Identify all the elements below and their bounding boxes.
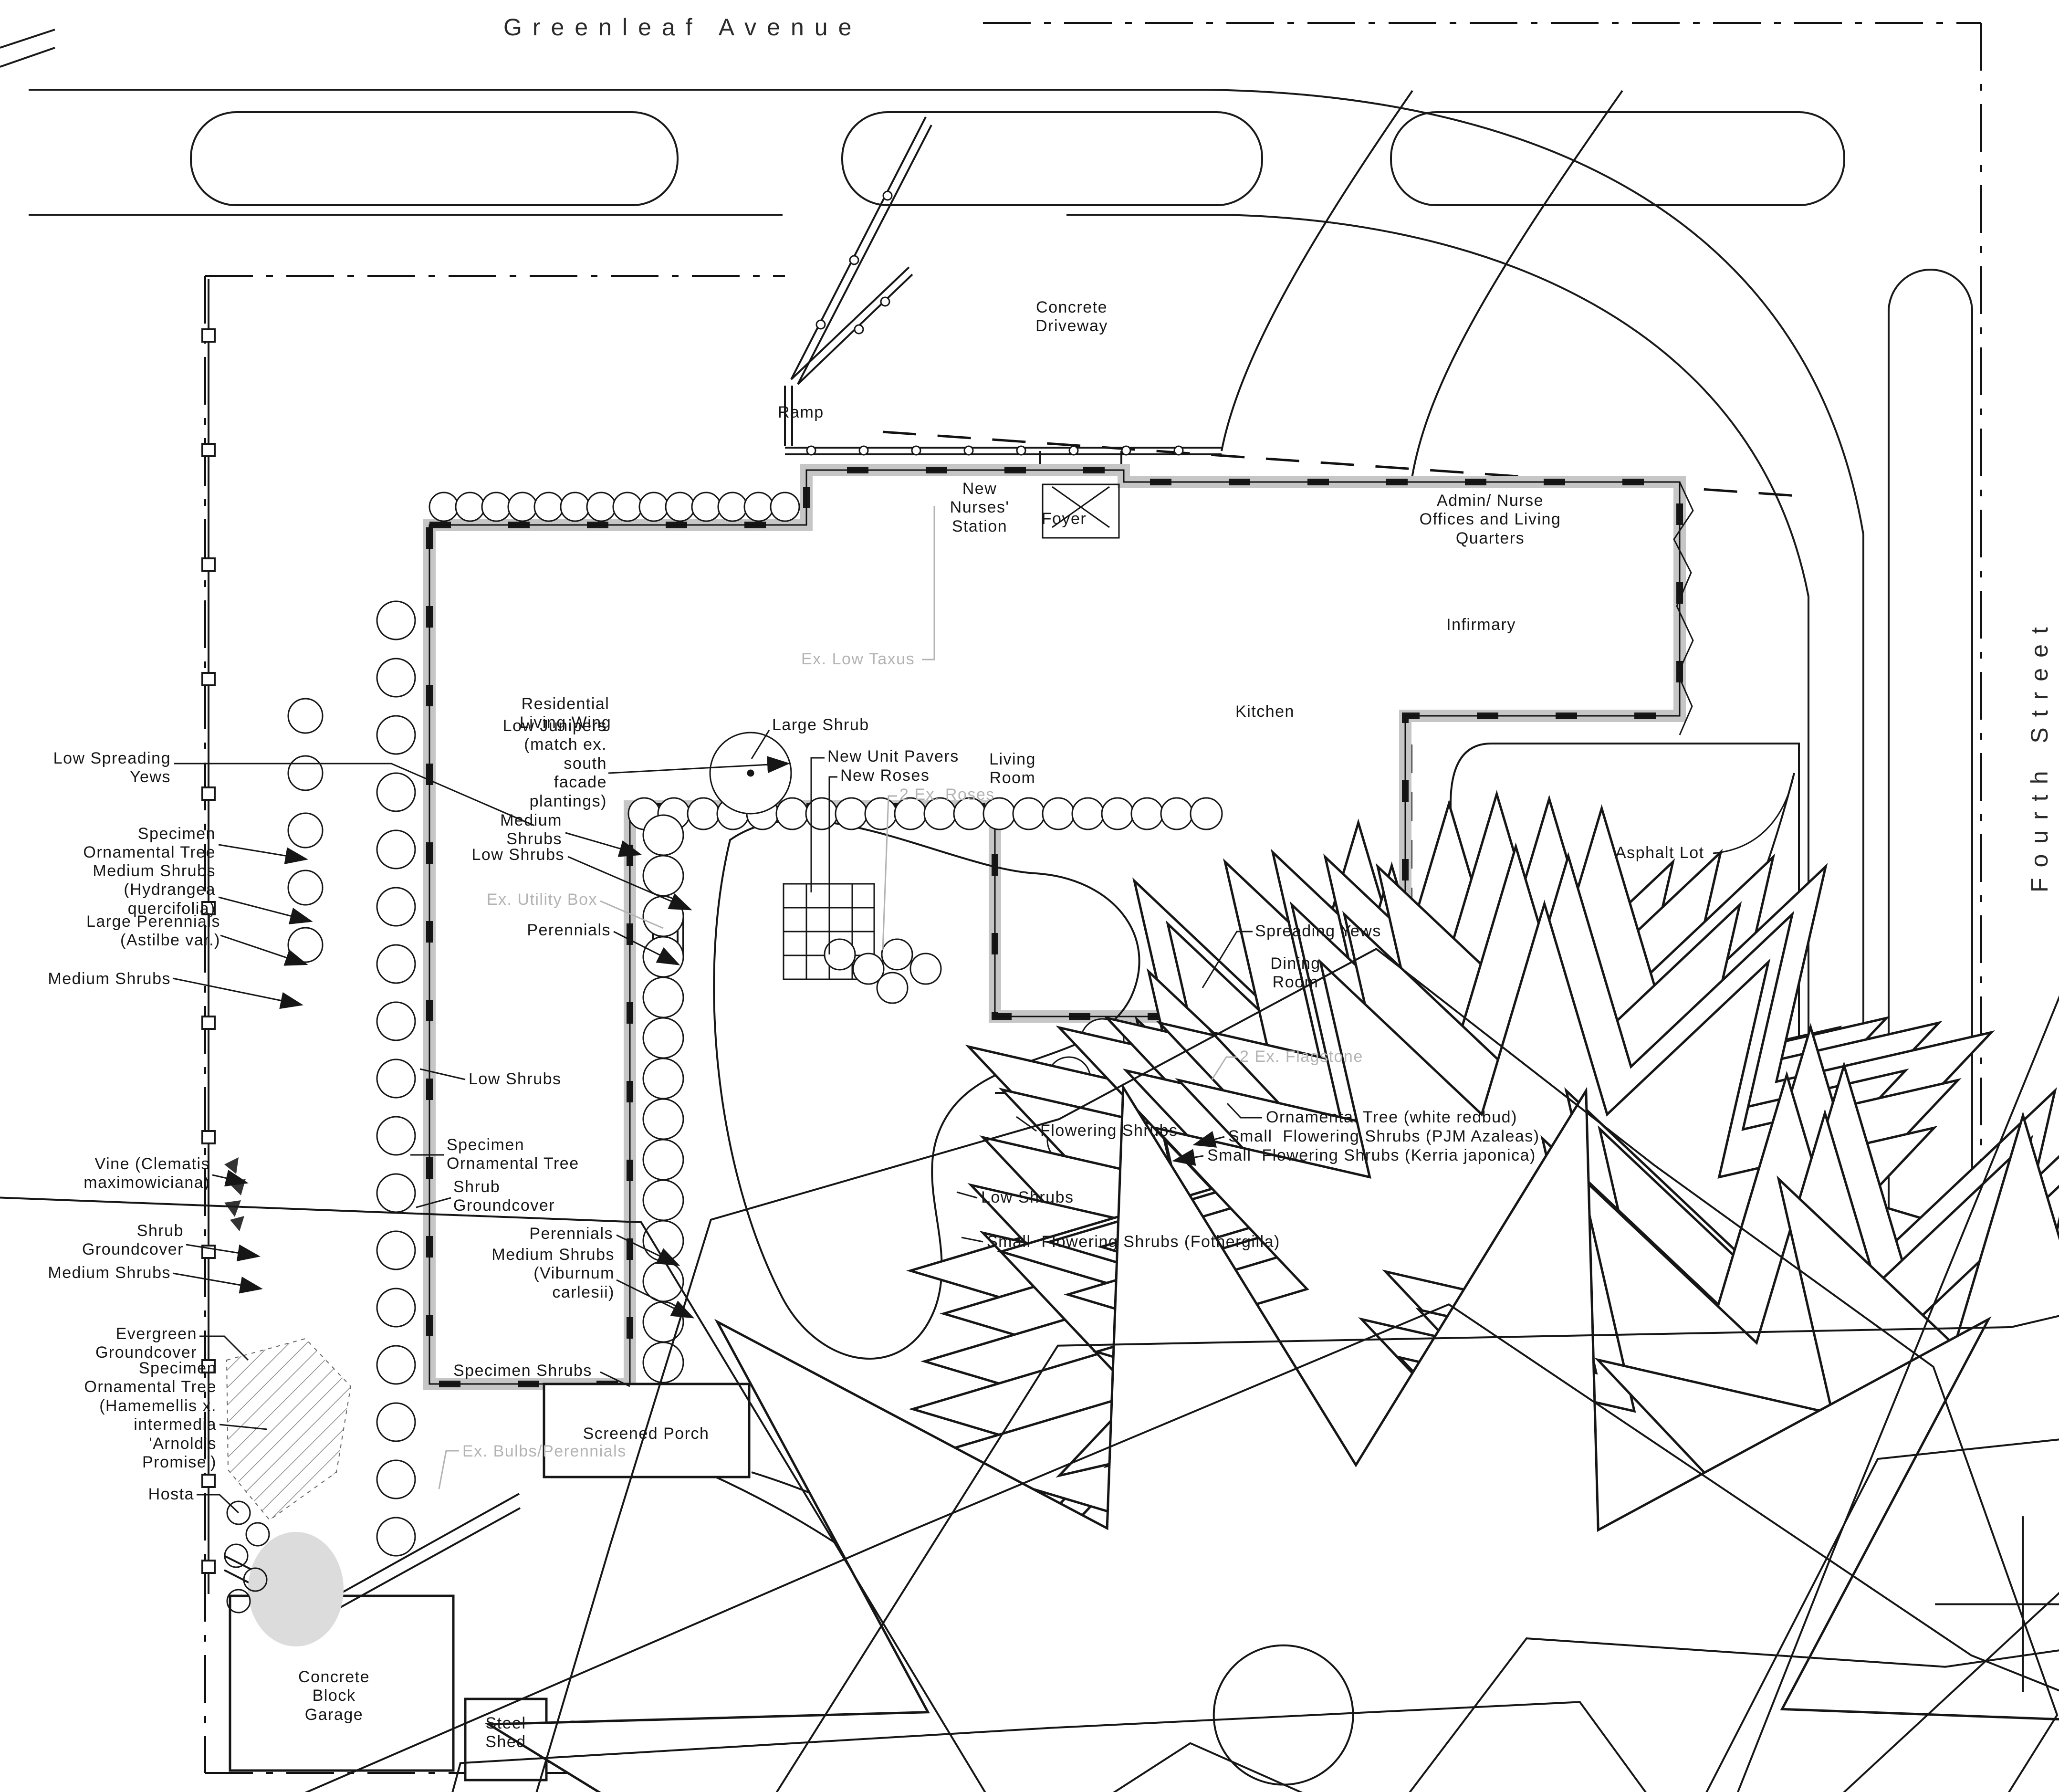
plan-linework	[0, 0, 2059, 1792]
spreading-yews-label: Spreading Yews	[1255, 922, 1381, 941]
shed-label: Steel Shed	[470, 1714, 542, 1752]
ex-bulbs-perennials-label: Ex. Bulbs/Perennials	[462, 1442, 627, 1461]
shrub-groundcover-a-label: Shrub Groundcover	[453, 1178, 555, 1216]
asphalt-lot-label: Asphalt Lot	[1615, 844, 1704, 862]
low-junipers-label: Low Junipers (match ex. south facade pla…	[503, 717, 607, 811]
admin-label: Admin/ Nurse Offices and Living Quarters	[1385, 492, 1595, 548]
living-room-label: Living Room	[965, 750, 1060, 788]
infirmary-label: Infirmary	[1410, 616, 1553, 634]
specimen-ornamental-tree-a-label: Specimen Ornamental Tree	[83, 825, 216, 862]
driveway-and-ramp	[785, 91, 1622, 483]
vine-clematis-label: Vine (Clematis maximowiciana)	[84, 1155, 210, 1193]
dining-room-label: Dining Room	[1248, 954, 1343, 992]
small-flowering-kerria-label: Small Flowering Shrubs (Kerria japonica)	[1207, 1146, 1536, 1165]
low-shrubs-wing-label: Low Shrubs	[471, 846, 564, 864]
new-nurses-station-label: New Nurses' Station	[927, 480, 1032, 536]
low-shrubs-court-label: Low Shrubs	[469, 1070, 562, 1089]
large-shrub-label: Large Shrub	[772, 716, 869, 734]
hosta-label: Hosta	[148, 1485, 194, 1504]
perennials-a-label: Perennials	[527, 921, 611, 940]
large-perennials-astilbe-label: Large Perennials (Astilbe var.)	[86, 912, 220, 950]
ex-utility-box-label: Ex. Utility Box	[487, 891, 597, 909]
kitchen-label: Kitchen	[1217, 702, 1313, 721]
screened-porch-label: Screened Porch	[570, 1425, 722, 1443]
ex-low-taxus-label: Ex. Low Taxus	[801, 650, 915, 669]
ex-roses-label: 2 Ex. Roses	[899, 786, 995, 804]
concrete-driveway-label: Concrete Driveway	[1000, 298, 1143, 336]
new-unit-pavers-label: New Unit Pavers	[827, 747, 959, 766]
specimen-shrubs-label: Specimen Shrubs	[453, 1362, 592, 1380]
medium-shrubs-b-label: Medium Shrubs	[48, 1264, 171, 1282]
medium-shrubs-hydrangea-label: Medium Shrubs (Hydrangea quercifolia)	[93, 862, 216, 918]
greenleaf-avenue-label: Greenleaf Avenue	[503, 13, 862, 41]
medium-shrubs-a-label: Medium Shrubs	[48, 970, 171, 988]
foyer-label: Foyer	[1026, 510, 1102, 528]
specimen-ornamental-tree-hamemellis-label: Specimen Ornamental Tree (Hamemellis x. …	[84, 1359, 217, 1472]
new-roses-label: New Roses	[840, 766, 930, 785]
flowering-shrubs-label: Flowering Shrubs	[1040, 1121, 1178, 1140]
small-flowering-pjm-label: Small Flowering Shrubs (PJM Azaleas)	[1228, 1127, 1540, 1146]
small-flowering-fothergilla-label: Small Flowering Shrubs (Fothergilla)	[987, 1233, 1280, 1251]
evergreen-groundcover-label: Evergreen Groundcover	[95, 1325, 197, 1362]
ex-flagstone-label: 2 Ex. Flagstone	[1240, 1048, 1363, 1066]
medium-shrubs-wing-label: Medium Shrubs	[500, 811, 562, 849]
ornamental-tree-redbud-label: Ornamental Tree (white redbud)	[1266, 1108, 1517, 1127]
medium-shrubs-viburnum-label: Medium Shrubs (Viburnum carlesii)	[491, 1246, 615, 1302]
ramp-label: Ramp	[778, 403, 824, 422]
landscape-site-plan: Greenleaf Avenue Fourth Street Concrete …	[0, 0, 2059, 1792]
specimen-ornamental-tree-b-label: Specimen Ornamental Tree	[447, 1136, 579, 1174]
fourth-street-label: Fourth Street	[2026, 617, 2053, 892]
low-shrubs-east-label: Low Shrubs	[981, 1188, 1074, 1207]
shrub-groundcover-b-label: Shrub Groundcover	[82, 1222, 184, 1259]
perennials-b-label: Perennials	[529, 1225, 613, 1243]
low-spreading-yews-label: Low Spreading Yews	[53, 749, 171, 787]
garage-label: Concrete Block Garage	[262, 1668, 406, 1724]
